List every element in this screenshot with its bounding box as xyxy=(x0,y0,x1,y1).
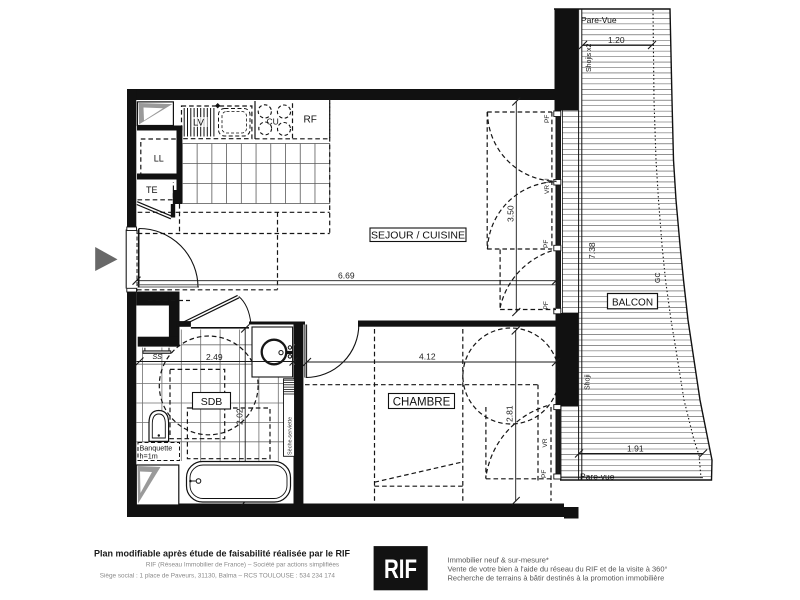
svg-text:SEJOUR / CUISINE: SEJOUR / CUISINE xyxy=(371,230,465,242)
svg-text:h=1m: h=1m xyxy=(140,452,158,461)
svg-text:Sèche-serviette: Sèche-serviette xyxy=(288,417,294,455)
svg-text:SDB: SDB xyxy=(201,396,223,408)
svg-text:TE: TE xyxy=(146,185,158,195)
svg-text:VR: VR xyxy=(542,438,549,447)
svg-text:3.50: 3.50 xyxy=(506,205,516,222)
svg-text:PF: PF xyxy=(543,301,550,309)
svg-text:CHAMBRE: CHAMBRE xyxy=(393,397,451,409)
svg-text:4.12: 4.12 xyxy=(419,352,436,362)
svg-text:PF: PF xyxy=(544,115,551,123)
svg-text:Plan modifiable après étude de: Plan modifiable après étude de faisabili… xyxy=(94,549,351,559)
svg-text:LV: LV xyxy=(193,118,205,129)
svg-text:BALCON: BALCON xyxy=(612,298,653,309)
svg-text:Siège social : 1 place de Pave: Siège social : 1 place de Paveurs, 31130… xyxy=(100,573,336,580)
svg-text:PF: PF xyxy=(543,240,550,248)
svg-text:Recherche de terrains à bâtir: Recherche de terrains à bâtir destinés à… xyxy=(448,574,665,583)
svg-text:SS: SS xyxy=(153,354,163,361)
svg-text:LL: LL xyxy=(154,154,164,164)
svg-text:1.20: 1.20 xyxy=(608,35,625,45)
svg-text:6.69: 6.69 xyxy=(338,271,355,281)
svg-text:2.02: 2.02 xyxy=(235,408,245,425)
svg-text:7.38: 7.38 xyxy=(587,242,597,259)
svg-text:Vente de votre bien à l'aide d: Vente de votre bien à l'aide du réseau d… xyxy=(448,565,668,574)
svg-text:CU: CU xyxy=(267,117,279,127)
svg-text:Shoji: Shoji xyxy=(585,374,592,390)
svg-text:Immobilier neuf & sur-mesure*: Immobilier neuf & sur-mesure* xyxy=(448,556,549,565)
svg-text:Pare-Vue: Pare-Vue xyxy=(581,15,617,25)
svg-text:RF: RF xyxy=(304,115,317,126)
svg-text:Pare-vue: Pare-vue xyxy=(580,472,615,482)
svg-text:1.91: 1.91 xyxy=(627,444,644,454)
svg-text:GC: GC xyxy=(655,273,662,284)
svg-text:2.49: 2.49 xyxy=(206,352,223,362)
svg-text:PF: PF xyxy=(541,470,548,478)
svg-text:Shojis x2: Shojis x2 xyxy=(586,43,593,72)
svg-text:2.81: 2.81 xyxy=(505,405,515,422)
svg-text:VR U: VR U xyxy=(544,178,551,194)
svg-text:RIF: RIF xyxy=(384,554,417,584)
svg-text:RIF (Réseau Immobilier de Fran: RIF (Réseau Immobilier de France) – Soci… xyxy=(146,562,339,569)
